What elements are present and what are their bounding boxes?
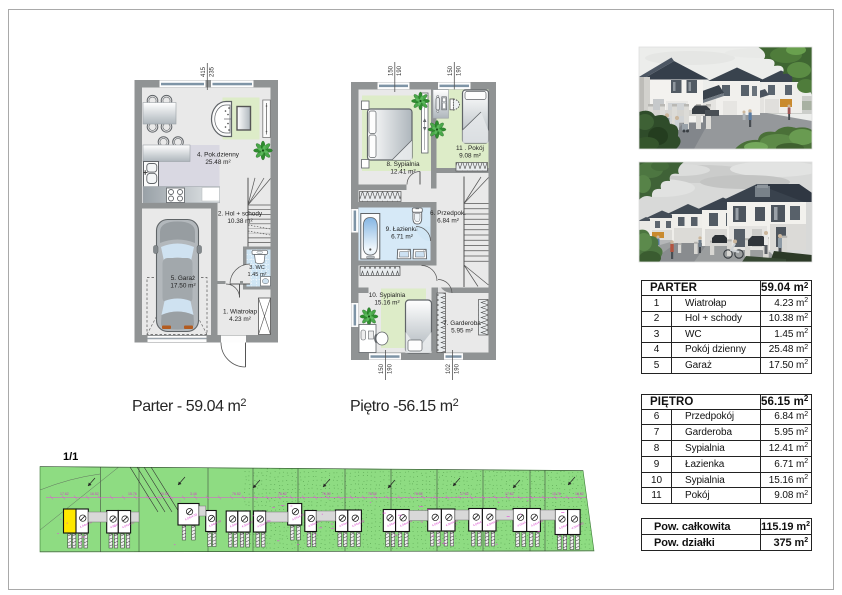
svg-text:76.52: 76.52 — [278, 492, 287, 496]
svg-text:2. Hol + schody: 2. Hol + schody — [218, 211, 263, 218]
svg-text:15.16 m²: 15.16 m² — [374, 300, 399, 307]
svg-text:4.23 m²: 4.23 m² — [229, 316, 251, 323]
svg-text:190: 190 — [457, 65, 463, 76]
svg-text:3.46: 3.46 — [190, 492, 197, 496]
svg-text:150: 150 — [448, 65, 454, 76]
svg-text:10. Sypialnia: 10. Sypialnia — [369, 292, 406, 299]
svg-text:6.71 m²: 6.71 m² — [391, 234, 413, 241]
svg-text:7. Garderoba: 7. Garderoba — [443, 320, 481, 327]
svg-text:10.38 m²: 10.38 m² — [227, 218, 252, 225]
svg-text:76.52: 76.52 — [160, 492, 169, 496]
svg-text:17.62: 17.62 — [505, 492, 514, 496]
svg-text:150: 150 — [389, 65, 395, 76]
svg-text:15.76: 15.76 — [552, 492, 561, 496]
svg-text:235: 235 — [210, 66, 216, 77]
svg-text:1. Wiatrołap: 1. Wiatrołap — [223, 309, 258, 316]
svg-text:76.52: 76.52 — [414, 492, 423, 496]
svg-text:5. Garaż: 5. Garaż — [171, 275, 196, 282]
svg-text:9. Łazienka: 9. Łazienka — [386, 226, 419, 233]
svg-text:4. Pok.dzienny: 4. Pok.dzienny — [197, 152, 240, 159]
svg-text:17.62: 17.62 — [460, 492, 469, 496]
svg-text:11 . Pokój: 11 . Pokój — [456, 145, 484, 152]
svg-text:16.52: 16.52 — [90, 492, 99, 496]
svg-text:6.84 m²: 6.84 m² — [437, 218, 459, 225]
svg-text:190: 190 — [455, 363, 461, 374]
svg-text:9.08 m²: 9.08 m² — [459, 153, 481, 160]
svg-text:15.76: 15.76 — [128, 492, 137, 496]
svg-text:5.95 m²: 5.95 m² — [451, 328, 473, 335]
svg-text:102: 102 — [446, 363, 452, 374]
svg-text:16.52: 16.52 — [575, 492, 584, 496]
svg-text:6. Przedpok.: 6. Przedpok. — [430, 210, 466, 217]
svg-text:190: 190 — [397, 65, 403, 76]
svg-text:8. Sypialnia: 8. Sypialnia — [386, 161, 419, 168]
svg-text:76.52: 76.52 — [368, 492, 377, 496]
svg-text:190: 190 — [388, 363, 394, 374]
svg-text:76.52: 76.52 — [232, 492, 241, 496]
svg-text:76.52: 76.52 — [322, 492, 331, 496]
svg-text:17.62: 17.62 — [60, 492, 69, 496]
svg-text:3. WC: 3. WC — [249, 265, 265, 271]
svg-text:25.48 m²: 25.48 m² — [205, 159, 230, 166]
svg-text:150: 150 — [379, 363, 385, 374]
svg-text:17.50 m²: 17.50 m² — [170, 283, 195, 290]
svg-text:1.45 m²: 1.45 m² — [248, 272, 267, 278]
svg-text:415: 415 — [201, 66, 207, 77]
